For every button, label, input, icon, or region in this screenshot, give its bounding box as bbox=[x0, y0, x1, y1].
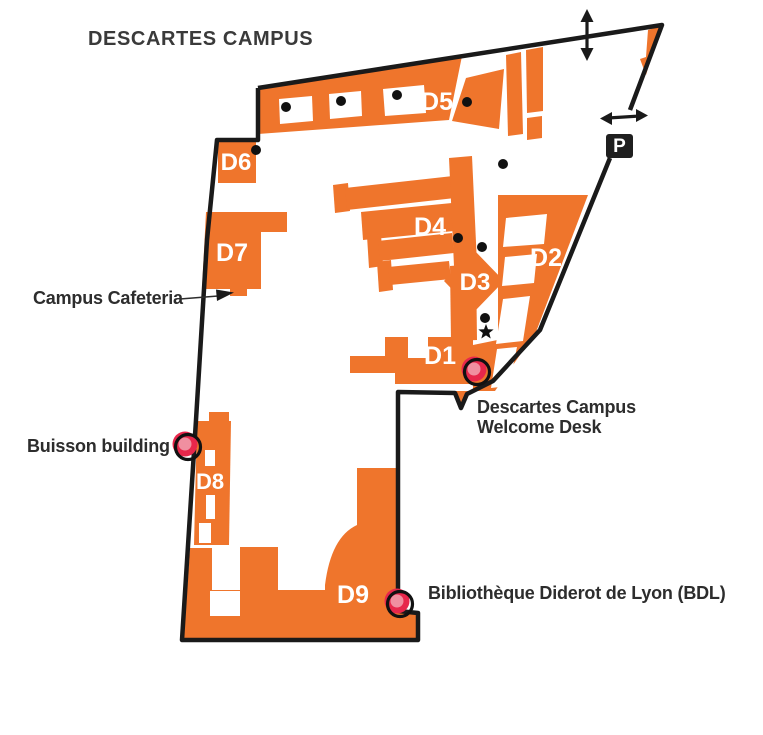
label-d6: D6 bbox=[221, 149, 252, 176]
buildings-layer bbox=[184, 26, 661, 640]
welcome-desk-label-line1: Descartes Campus bbox=[477, 397, 636, 417]
label-d4: D4 bbox=[414, 213, 446, 241]
label-d1: D1 bbox=[424, 342, 456, 370]
welcome-desk-label-line2: Welcome Desk bbox=[477, 417, 603, 437]
cafeteria-label: Campus Cafeteria bbox=[33, 288, 184, 308]
building-slab bbox=[526, 47, 543, 113]
building-d5-right-wing bbox=[452, 69, 504, 129]
star-icon bbox=[478, 324, 493, 339]
buisson-marker bbox=[173, 432, 201, 460]
buisson-label: Buisson building bbox=[27, 436, 170, 456]
map-dot bbox=[392, 90, 402, 100]
welcome-desk-marker bbox=[462, 357, 490, 385]
map-dot bbox=[281, 102, 291, 112]
building-d9-block bbox=[240, 547, 278, 592]
building-d9-tower bbox=[325, 468, 397, 592]
parking-label: P bbox=[613, 136, 626, 157]
courtyard-hole bbox=[199, 523, 211, 543]
east-west-arrow-icon bbox=[600, 109, 648, 125]
campus-map: P D1 D2 D3 D4 D5 D6 D7 D8 D9 DESCARTES C… bbox=[0, 0, 763, 735]
campus-map-svg: P D1 D2 D3 D4 D5 D6 D7 D8 D9 DESCARTES C… bbox=[0, 0, 763, 735]
library-marker bbox=[385, 589, 413, 617]
courtyard-hole bbox=[206, 495, 215, 519]
building-slab bbox=[506, 52, 523, 136]
map-dot bbox=[462, 97, 472, 107]
cafeteria-pointer-arrow bbox=[180, 290, 234, 302]
courtyard-hole bbox=[329, 91, 362, 119]
label-d5: D5 bbox=[421, 88, 453, 116]
label-d7: D7 bbox=[216, 239, 248, 267]
map-dot bbox=[477, 242, 487, 252]
map-dot bbox=[453, 233, 463, 243]
building-d8-column bbox=[187, 548, 212, 592]
courtyard-hole bbox=[210, 591, 240, 616]
page-title: DESCARTES CAMPUS bbox=[88, 28, 313, 50]
map-dot bbox=[498, 159, 508, 169]
courtyard-hole bbox=[205, 450, 215, 466]
map-dot bbox=[336, 96, 346, 106]
label-d9: D9 bbox=[337, 581, 369, 609]
building-d4-bar bbox=[388, 261, 451, 285]
library-label: Bibliothèque Diderot de Lyon (BDL) bbox=[428, 583, 726, 603]
label-d8: D8 bbox=[196, 469, 224, 494]
label-d3: D3 bbox=[460, 269, 491, 296]
courtyard-hole bbox=[383, 85, 426, 116]
building-d8-step bbox=[209, 412, 229, 422]
courtyard-hole bbox=[503, 214, 547, 247]
label-d2: D2 bbox=[530, 244, 562, 272]
map-dot bbox=[251, 145, 261, 155]
parking-sign: P bbox=[606, 134, 633, 158]
building-slab bbox=[527, 116, 542, 140]
map-dot bbox=[480, 313, 490, 323]
